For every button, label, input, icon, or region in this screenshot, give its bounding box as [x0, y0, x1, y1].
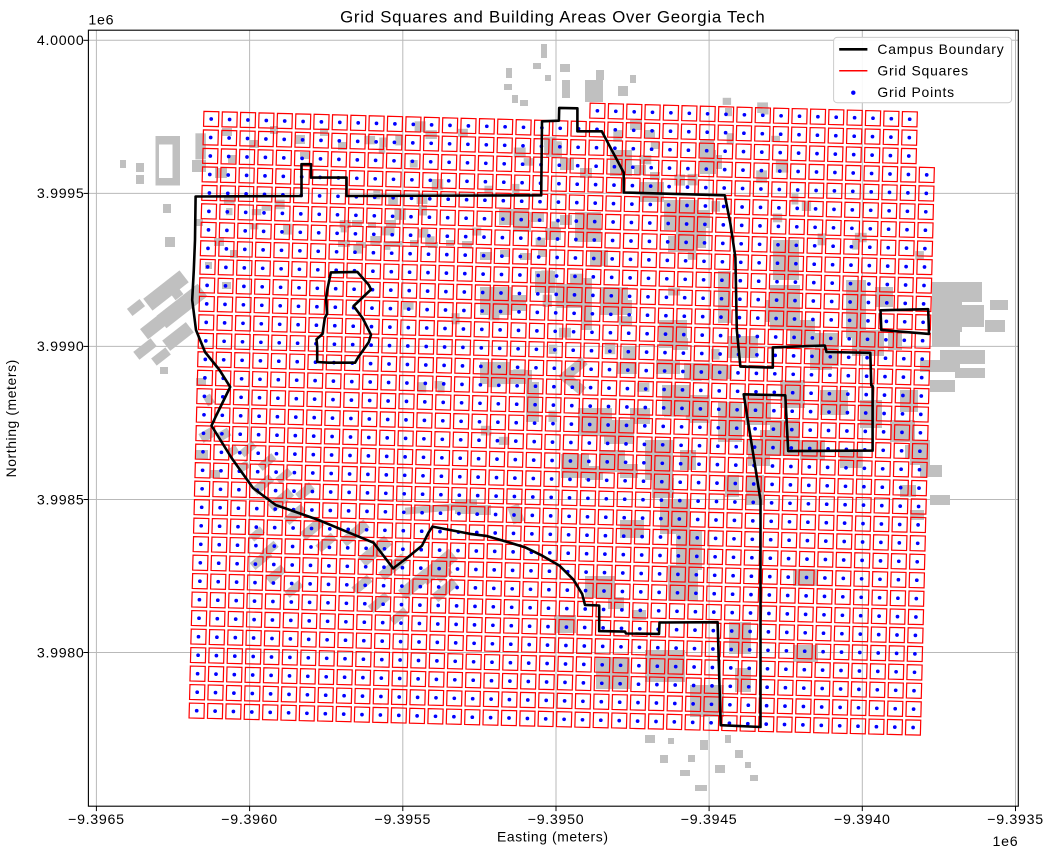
svg-text:3.9990: 3.9990 [37, 339, 85, 355]
svg-text:3.9995: 3.9995 [37, 186, 85, 202]
svg-text:1e6: 1e6 [88, 13, 114, 29]
svg-text:−9.3935: −9.3935 [987, 812, 1044, 828]
svg-text:Grid Squares: Grid Squares [877, 62, 968, 78]
svg-text:−9.3940: −9.3940 [834, 812, 891, 828]
svg-text:Grid Squares and Building Area: Grid Squares and Building Areas Over Geo… [340, 8, 765, 27]
svg-text:−9.3950: −9.3950 [528, 812, 585, 828]
svg-text:3.9985: 3.9985 [37, 492, 85, 508]
svg-text:−9.3955: −9.3955 [375, 812, 432, 828]
svg-text:1e6: 1e6 [993, 834, 1019, 850]
svg-text:−9.3965: −9.3965 [68, 812, 125, 828]
svg-text:4.0000: 4.0000 [37, 33, 85, 49]
svg-text:Easting (meters): Easting (meters) [497, 829, 609, 845]
svg-text:Campus Boundary: Campus Boundary [877, 41, 1004, 57]
svg-text:Grid Points: Grid Points [877, 84, 955, 100]
svg-text:3.9980: 3.9980 [37, 645, 85, 661]
svg-text:−9.3945: −9.3945 [681, 812, 738, 828]
svg-text:−9.3960: −9.3960 [221, 812, 278, 828]
svg-text:Northing (meters): Northing (meters) [3, 359, 19, 477]
